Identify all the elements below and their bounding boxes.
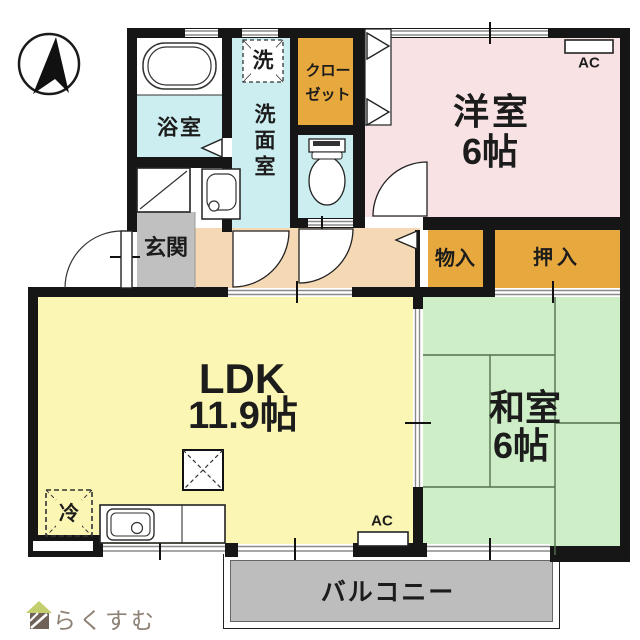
ldk-size: 11.9帖 [188, 397, 298, 435]
laundry-label: 洗 [251, 51, 276, 72]
japanese-room-name: 和室 [489, 390, 561, 426]
entrance-door-icon [65, 231, 132, 288]
entrance-label: 玄関 [144, 237, 188, 259]
closet-label-line1: クロー [305, 64, 350, 79]
room-toilet [298, 135, 353, 218]
compass-icon [19, 34, 79, 94]
shoe-cabinet-icon [137, 168, 190, 212]
floor-plan: 浴室 洗 洗面室 クロー ゼット 玄関 洋室 6帖 AC 物入 押入 LDK 1… [0, 0, 640, 640]
bathroom-label: 浴室 [157, 118, 203, 139]
ac-label-ldk: AC [371, 514, 393, 529]
room-hallway [195, 228, 420, 288]
closet-label-line2: ゼット [305, 88, 350, 103]
ac-label-western: AC [578, 56, 600, 71]
ldk-name: LDK [199, 358, 285, 400]
washroom-label: 洗面室 [253, 103, 274, 181]
room-closet [298, 38, 353, 125]
refrigerator-label: 冷 [59, 504, 79, 524]
western-room-size: 6帖 [462, 134, 518, 170]
storage-small-label: 物入 [435, 249, 475, 269]
balcony-label: バルコニー [321, 581, 456, 606]
logo-text: らくすむ [53, 610, 157, 633]
logo-house-icon [26, 601, 52, 629]
western-room-name: 洋室 [453, 94, 531, 130]
storage-futon-label: 押入 [533, 248, 581, 268]
japanese-room-size: 6帖 [493, 428, 549, 464]
